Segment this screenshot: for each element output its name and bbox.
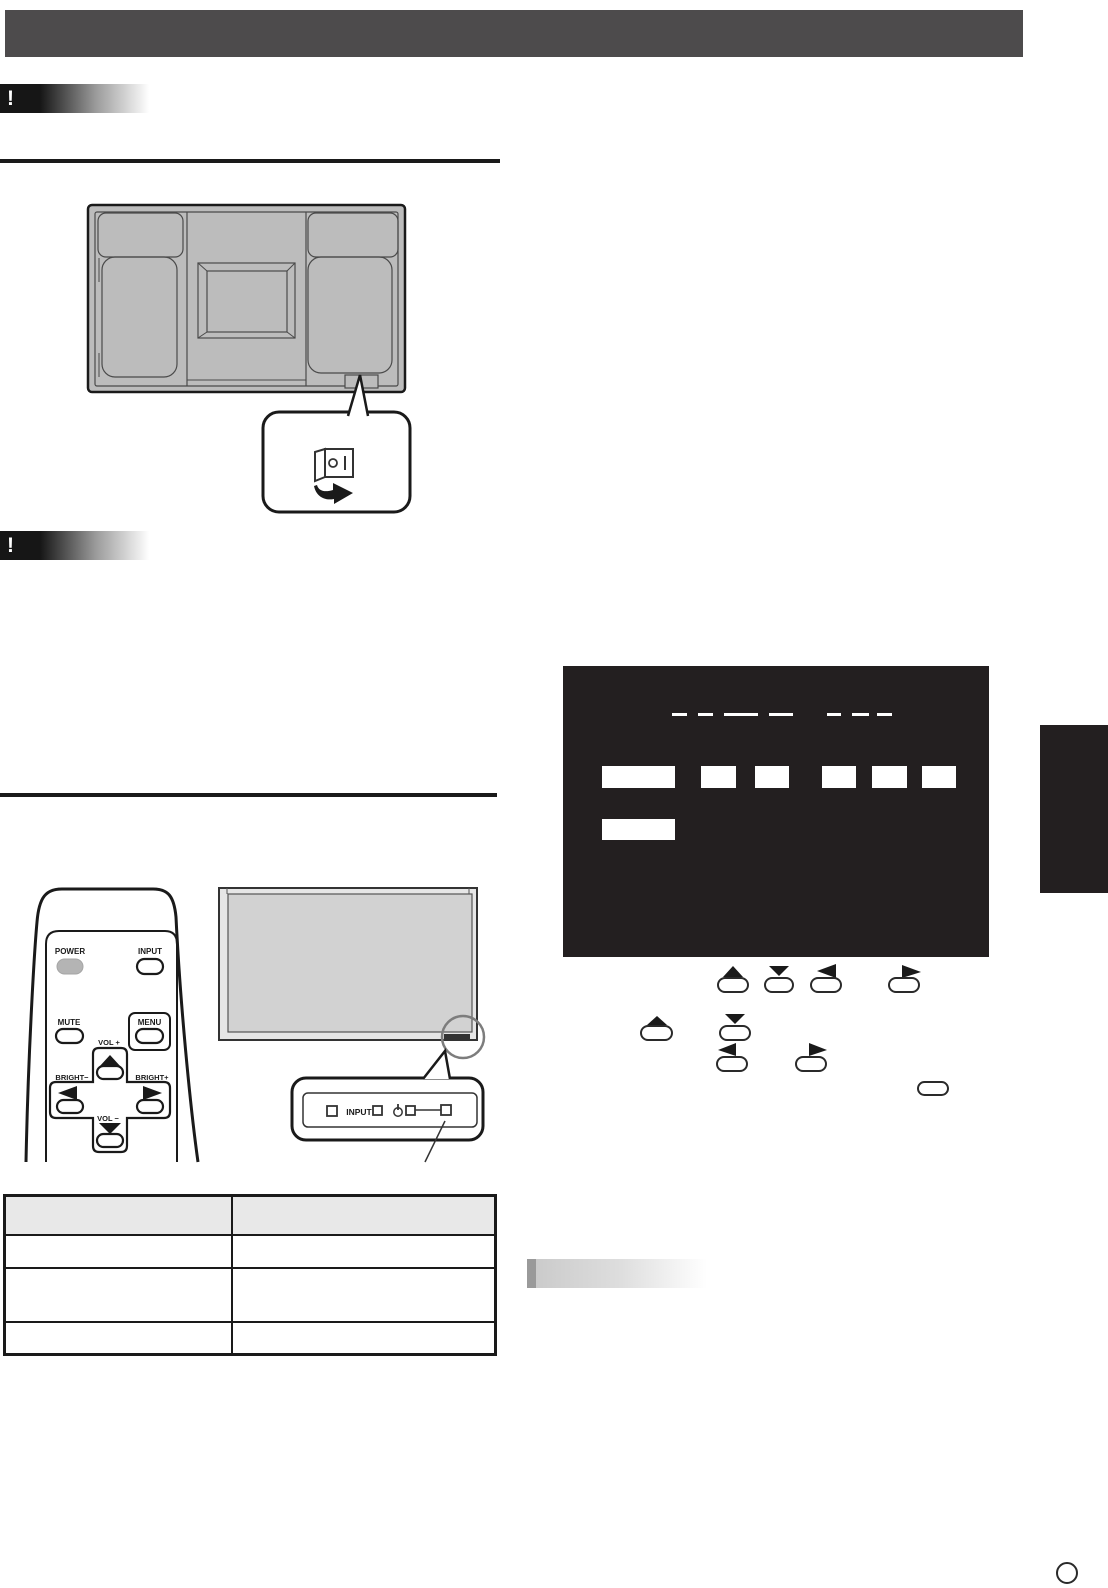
front-input-label: INPUT xyxy=(346,1107,372,1117)
led-square xyxy=(406,1106,415,1115)
up-triangle-icon xyxy=(647,1016,667,1025)
remote-bright-minus-label: BRIGHT− xyxy=(55,1073,89,1082)
osd-instruction-buttons xyxy=(641,964,948,1095)
figures-layer: POWER INPUT MUTE MENU VOL + BRIGHT− BRIG… xyxy=(0,0,1108,1588)
callout-pointer xyxy=(423,1051,450,1079)
front-panel-callout: INPUT xyxy=(292,1051,483,1162)
power-led-square xyxy=(441,1105,451,1115)
button-glyph xyxy=(918,1082,948,1095)
down-button-glyph xyxy=(720,1026,750,1040)
remote-input-label: INPUT xyxy=(138,947,162,956)
remote-down-button xyxy=(97,1134,123,1147)
remote-vol-plus-label: VOL + xyxy=(98,1038,120,1047)
up-button-glyph xyxy=(641,1026,672,1040)
remote-power-button xyxy=(57,959,83,974)
left-button-glyph xyxy=(811,978,841,992)
up-button-glyph xyxy=(718,978,748,992)
right-button-glyph xyxy=(796,1057,826,1071)
led-square xyxy=(327,1106,337,1116)
remote-bright-plus-label: BRIGHT+ xyxy=(135,1073,169,1082)
left-triangle-icon xyxy=(718,1043,736,1056)
remote-mute-label: MUTE xyxy=(58,1018,81,1027)
left-triangle-icon xyxy=(817,964,836,978)
monitor-front-figure xyxy=(219,888,484,1058)
left-button-glyph xyxy=(717,1057,747,1071)
down-triangle-icon xyxy=(725,1014,745,1024)
remote-left-button xyxy=(57,1100,83,1113)
up-triangle-icon xyxy=(723,966,743,977)
led-sensor-strip xyxy=(444,1034,470,1039)
remote-mute-button xyxy=(56,1029,83,1043)
down-button-glyph xyxy=(765,978,793,992)
led-square xyxy=(373,1106,382,1115)
remote-input-button xyxy=(137,959,163,974)
down-triangle-icon xyxy=(769,966,789,976)
right-triangle-icon xyxy=(809,1043,827,1056)
right-triangle-icon xyxy=(902,965,921,978)
remote-control-figure: POWER INPUT MUTE MENU VOL + BRIGHT− BRIG… xyxy=(26,889,198,1162)
right-button-glyph xyxy=(889,978,919,992)
manual-page: ! ! xyxy=(0,0,1108,1588)
remote-up-button xyxy=(97,1066,123,1079)
monitor-screen xyxy=(228,894,472,1032)
remote-menu-button xyxy=(136,1029,163,1043)
monitor-rear-figure xyxy=(88,205,405,392)
power-switch-callout xyxy=(263,375,410,512)
rocker-switch-icon xyxy=(315,449,353,481)
remote-menu-label: MENU xyxy=(138,1018,162,1027)
remote-vol-minus-label: VOL − xyxy=(97,1114,119,1123)
remote-power-label: POWER xyxy=(55,947,85,956)
remote-right-button xyxy=(137,1100,163,1113)
